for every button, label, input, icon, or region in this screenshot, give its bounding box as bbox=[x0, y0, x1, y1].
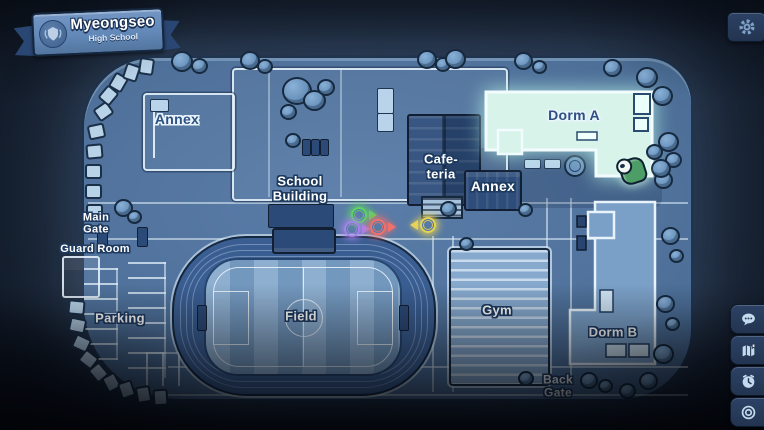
tree-icon bbox=[636, 67, 658, 88]
tree-icon bbox=[518, 371, 534, 386]
label-annex-nw: Annex bbox=[155, 112, 199, 128]
tree-icon bbox=[661, 227, 680, 245]
tree-icon bbox=[656, 295, 675, 313]
tree-icon bbox=[459, 237, 474, 251]
wall-block bbox=[152, 388, 168, 406]
tree-icon bbox=[639, 372, 658, 390]
tree-icon bbox=[598, 379, 613, 393]
gear-icon bbox=[738, 18, 756, 36]
label-gym: Gym bbox=[482, 304, 512, 319]
tree-icon bbox=[669, 249, 684, 263]
label-main-gate: Main Gate bbox=[83, 212, 109, 237]
school-crest-icon bbox=[38, 19, 67, 48]
goal-right bbox=[399, 305, 409, 331]
tree-icon bbox=[518, 203, 533, 217]
tree-icon bbox=[417, 50, 437, 69]
school-wing-line bbox=[340, 68, 342, 197]
journal-button[interactable] bbox=[730, 335, 764, 365]
chat-bubble-icon bbox=[740, 311, 757, 328]
label-annex-center: Annex bbox=[471, 179, 515, 195]
school-vent bbox=[320, 139, 329, 156]
tree-icon bbox=[532, 60, 547, 74]
banner-face: Myeongseo High School bbox=[31, 7, 165, 57]
tree-icon bbox=[191, 58, 208, 74]
label-guard-room: Guard Room bbox=[60, 243, 130, 255]
penalty-box-left bbox=[213, 291, 249, 345]
tree-icon bbox=[619, 383, 636, 399]
npc-marker-red bbox=[370, 219, 386, 235]
school-entrance bbox=[268, 204, 334, 228]
school-vent bbox=[302, 139, 311, 156]
target-button[interactable] bbox=[730, 397, 764, 427]
campus-map-screen: Annex School Building Cafe- teria Annex … bbox=[0, 0, 764, 430]
tree-icon bbox=[285, 133, 301, 148]
tree-icon bbox=[580, 372, 598, 389]
wall-block bbox=[85, 164, 102, 179]
school-skylight bbox=[377, 88, 394, 114]
target-circle-icon bbox=[740, 404, 757, 421]
school-skylight bbox=[377, 113, 394, 132]
tree-icon bbox=[646, 144, 663, 160]
wall-block bbox=[138, 57, 155, 76]
school-wing-line bbox=[268, 68, 270, 197]
label-dorm-a: Dorm A bbox=[548, 108, 600, 124]
map-journal-icon bbox=[740, 342, 757, 359]
wall-block bbox=[85, 143, 103, 159]
bleachers bbox=[272, 228, 336, 254]
label-cafeteria: Cafe- teria bbox=[424, 152, 458, 181]
label-parking: Parking bbox=[95, 312, 145, 327]
tree-icon bbox=[280, 104, 297, 120]
banner-text: Myeongseo High School bbox=[67, 12, 158, 44]
label-dorm-b: Dorm B bbox=[589, 326, 638, 341]
npc-marker-purple bbox=[344, 221, 360, 237]
tree-icon bbox=[653, 344, 674, 364]
school-banner: Myeongseo High School bbox=[13, 2, 185, 61]
clock-button[interactable] bbox=[730, 366, 764, 396]
settings-button[interactable] bbox=[727, 12, 764, 42]
tree-icon bbox=[603, 59, 622, 77]
tree-icon bbox=[652, 86, 673, 106]
wall-block bbox=[68, 316, 88, 334]
wall-block bbox=[85, 184, 102, 199]
tree-icon bbox=[665, 317, 680, 331]
tree-icon bbox=[651, 159, 671, 178]
wall-block bbox=[135, 385, 153, 404]
tree-icon bbox=[257, 59, 273, 74]
clock-icon bbox=[740, 373, 757, 390]
npc-marker-yellow bbox=[420, 217, 436, 233]
label-back-gate: Back Gate bbox=[543, 374, 573, 401]
tree-icon bbox=[127, 210, 142, 224]
wall-block bbox=[67, 299, 85, 315]
annex-shed bbox=[150, 99, 169, 112]
label-school-building: School Building bbox=[273, 174, 327, 203]
goal-left bbox=[197, 305, 207, 331]
tree-icon bbox=[514, 52, 533, 70]
tree-icon bbox=[440, 201, 457, 217]
tree-icon bbox=[317, 79, 335, 96]
school-vent bbox=[311, 139, 320, 156]
main-gate-post bbox=[137, 227, 148, 247]
chat-button[interactable] bbox=[730, 304, 764, 334]
penalty-box-right bbox=[357, 291, 393, 345]
label-field: Field bbox=[285, 310, 317, 325]
building-dorm-b bbox=[560, 194, 662, 374]
tree-icon bbox=[445, 49, 466, 69]
